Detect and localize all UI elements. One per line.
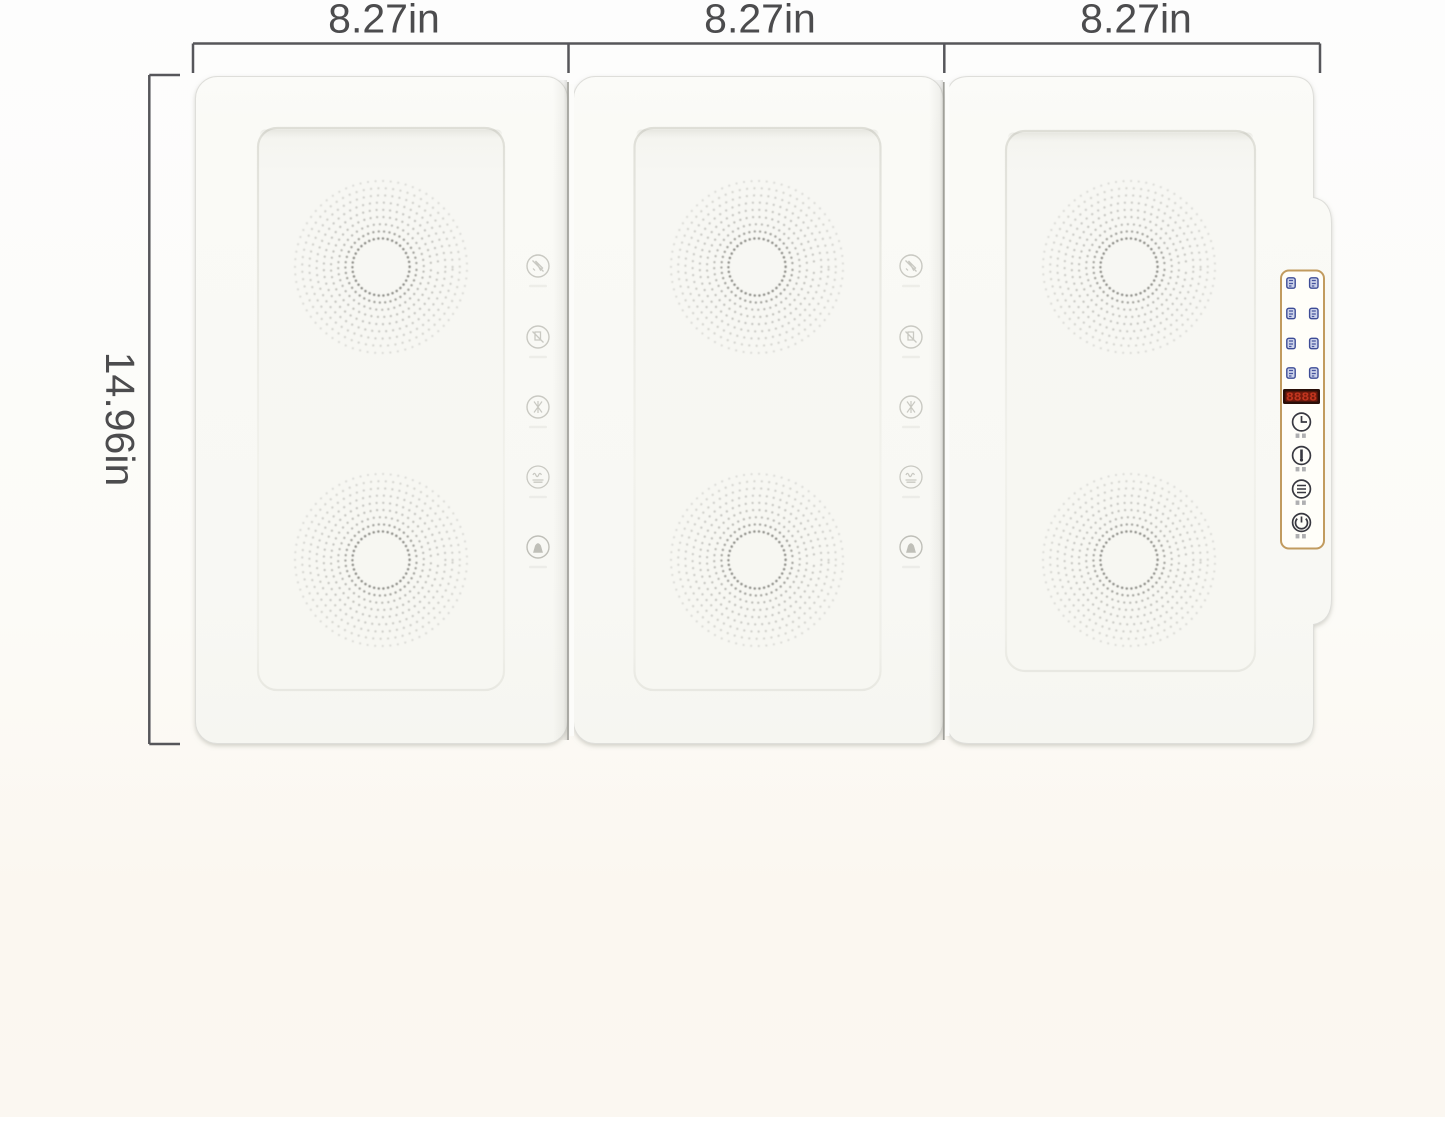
svg-text:8888: 8888 [1286,391,1317,405]
svg-text:8.27in: 8.27in [1080,0,1192,42]
svg-text:8.27in: 8.27in [704,0,816,42]
svg-text:14.96in: 14.96in [97,352,143,487]
svg-text:8.27in: 8.27in [328,0,440,42]
